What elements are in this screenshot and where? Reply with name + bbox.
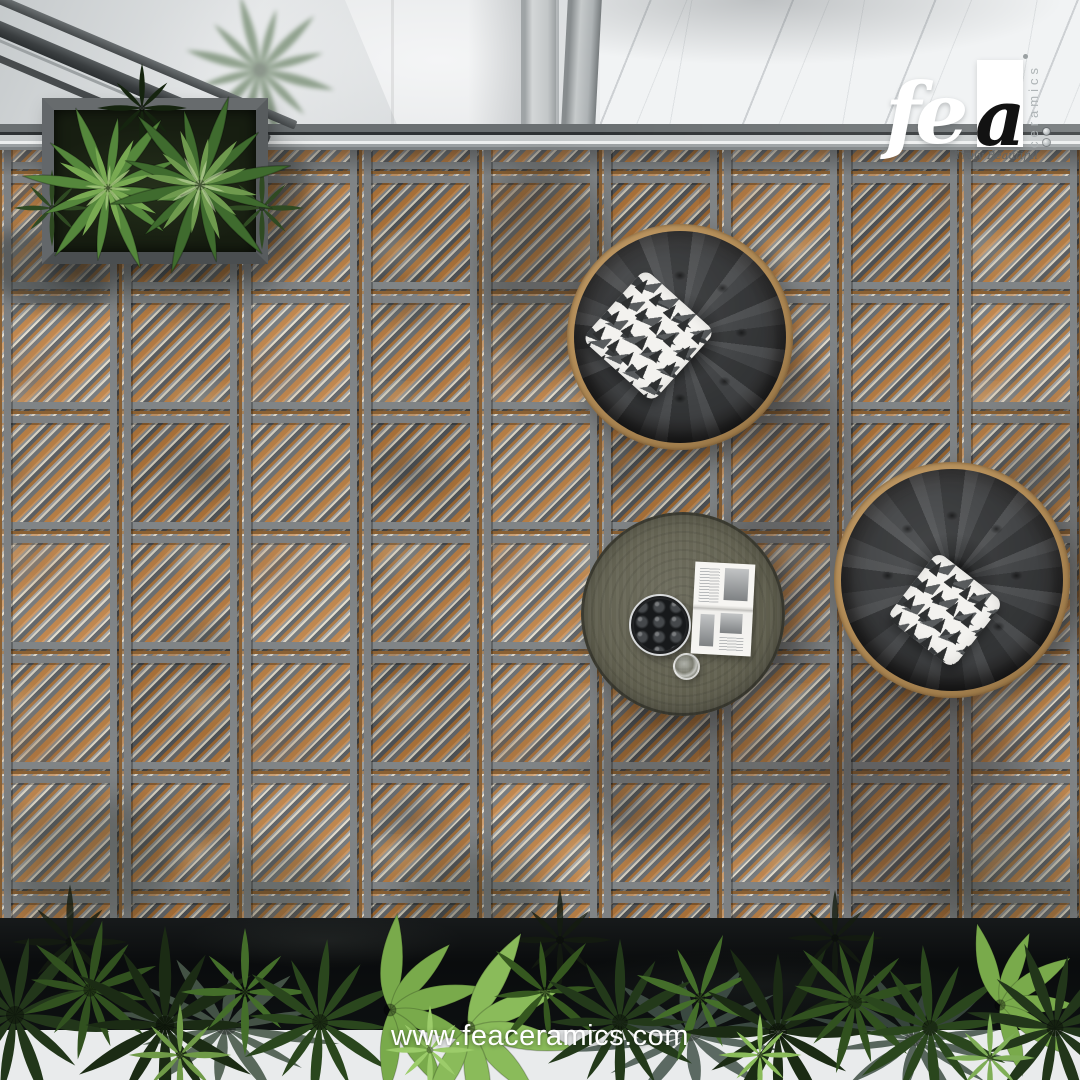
poster-canvas: www.feaceramics.com fe a ceramics Truly … <box>0 0 1080 1080</box>
drinking-glass <box>673 653 700 680</box>
track-screw-icon <box>1043 139 1050 146</box>
open-magazine <box>691 561 756 656</box>
website-url: www.feaceramics.com <box>0 1020 1080 1053</box>
logo-text-ceramics: ceramics <box>1026 60 1041 148</box>
magazine-text <box>719 637 744 652</box>
papasan-chair-2 <box>834 462 1070 698</box>
planter-plants <box>12 58 312 288</box>
berry-bowl <box>629 594 691 656</box>
plant-border <box>0 910 1080 1080</box>
coffee-table <box>581 512 785 716</box>
logo-tagline: Truly Beautiful <box>940 149 1038 162</box>
berries <box>634 599 686 651</box>
logo-text-a: a <box>975 80 1026 158</box>
magazine-photo <box>699 614 715 647</box>
track-screw-icon <box>1043 128 1050 135</box>
magazine-photo <box>720 613 743 634</box>
magazine-photo <box>723 568 749 601</box>
logo-dot-icon <box>1023 54 1028 59</box>
papasan-chair-1 <box>567 224 793 450</box>
magazine-text <box>698 568 720 603</box>
logo-text-fe: fe <box>885 72 963 156</box>
